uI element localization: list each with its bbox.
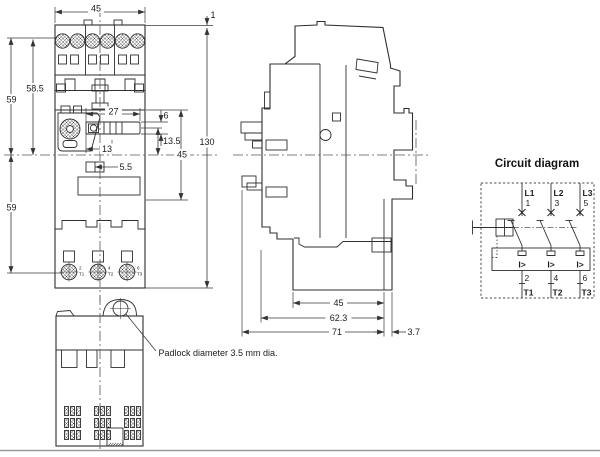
bottom-terminal-screws: 2 T1 4 T2 6 T3 xyxy=(60,251,143,282)
circuit-diagram: Circuit diagram L1 1 I> xyxy=(473,158,595,298)
line-label: L3 xyxy=(583,188,593,198)
dim-slider-to-center: 13 xyxy=(102,144,112,154)
padlock-note: Padlock diameter 3.5 mm dia. xyxy=(159,348,278,358)
dim-rear-offset: 3.7 xyxy=(408,327,421,337)
din-rail-latch xyxy=(372,238,391,252)
leader-line xyxy=(126,314,156,351)
bottom-view: Padlock diameter 3.5 mm dia. xyxy=(56,295,278,452)
dim-top-width: 45 xyxy=(91,4,101,14)
top-terminal-number: 3 xyxy=(555,198,560,208)
padlock-tab xyxy=(103,300,137,317)
load-terminal-label: T2 xyxy=(553,288,563,298)
bottom-terminal-number: 6 xyxy=(583,273,588,283)
dim-body-depth: 45 xyxy=(333,298,343,308)
dim-total-depth: 71 xyxy=(332,327,342,337)
engineering-drawing: 2 T1 4 T2 6 T3 45 1 130 59 58.5 59 xyxy=(0,0,600,457)
circuit-border xyxy=(481,183,594,298)
top-terminal-number: 5 xyxy=(584,198,589,208)
dim-left-upper: 59 xyxy=(6,95,16,105)
side-terminal-lug xyxy=(241,122,262,133)
vent-slots xyxy=(65,407,141,440)
bottom-terminal-number: 2 xyxy=(525,273,530,283)
circuit-pole-1: L1 1 I> 2 T1 xyxy=(508,183,535,298)
handle-symbol xyxy=(473,219,578,258)
overload-symbol: I> xyxy=(518,260,525,270)
side-terminal-lug xyxy=(242,176,256,187)
dim-left-lower: 59 xyxy=(6,203,16,213)
current-setting-slider xyxy=(86,122,140,134)
overload-box xyxy=(492,248,590,271)
nameplate xyxy=(78,177,140,195)
dim-small-window: 5.5 xyxy=(120,162,133,172)
terminal-label: T2 xyxy=(108,272,114,277)
line-label: L2 xyxy=(554,188,564,198)
line-label: L1 xyxy=(525,188,535,198)
rotary-knob xyxy=(58,106,100,151)
load-terminal-label: T3 xyxy=(582,288,592,298)
side-view xyxy=(233,22,428,291)
bottom-terminal-number: 4 xyxy=(554,273,559,283)
terminal-number: 6 xyxy=(137,266,140,271)
dim-top-offset: 1 xyxy=(211,10,216,20)
dim-left-upper-inner: 58.5 xyxy=(26,84,44,94)
terminal-label: T3 xyxy=(137,272,143,277)
circuit-title: Circuit diagram xyxy=(495,158,579,170)
circuit-pole-3: L3 5 I> 6 T3 xyxy=(566,183,593,298)
drawing-page: 2 T1 4 T2 6 T3 45 1 130 59 58.5 59 xyxy=(0,0,600,457)
dim-mid-depth: 62.3 xyxy=(330,313,348,323)
terminal-label: T1 xyxy=(79,272,85,277)
dim-slider-width: 27 xyxy=(108,107,118,117)
side-view-dimensions: 45 62.3 71 3.7 xyxy=(242,190,420,337)
circuit-pole-2: L2 3 I> 4 T2 xyxy=(537,183,564,298)
dim-window-to-center: 13.5 xyxy=(163,136,181,146)
overload-symbol: I> xyxy=(547,260,554,270)
dim-total-height: 130 xyxy=(199,137,214,147)
dim-window-height: 6 xyxy=(164,111,169,121)
overload-symbol: I> xyxy=(576,260,583,270)
load-terminal-label: T1 xyxy=(524,288,534,298)
dim-mid-section: 45 xyxy=(177,150,187,160)
terminal-number: 4 xyxy=(108,266,111,271)
terminal-number: 2 xyxy=(79,266,82,271)
top-terminal-number: 1 xyxy=(526,198,531,208)
